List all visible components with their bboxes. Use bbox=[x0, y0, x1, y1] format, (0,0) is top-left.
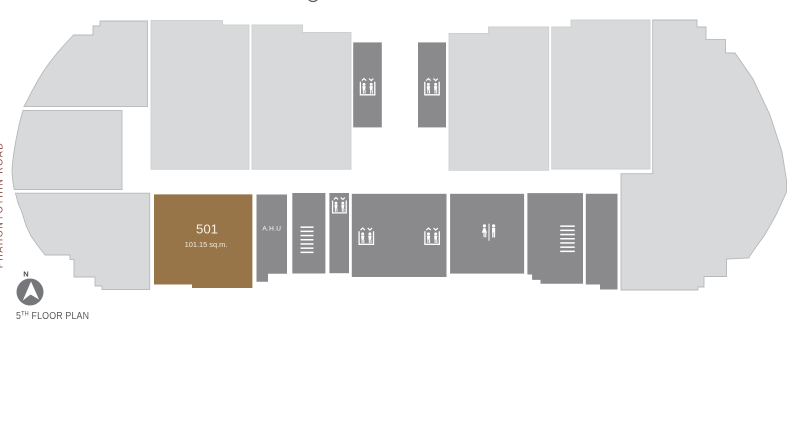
svg-text:A.H.U: A.H.U bbox=[262, 226, 281, 233]
svg-text:501: 501 bbox=[196, 222, 218, 237]
svg-text:5TH FLOOR PLAN: 5TH FLOOR PLAN bbox=[16, 310, 89, 322]
svg-text:N: N bbox=[23, 270, 28, 279]
svg-text:101.15 sq.m.: 101.15 sq.m. bbox=[185, 240, 228, 249]
svg-text:PHAHONYOTHIN ROAD: PHAHONYOTHIN ROAD bbox=[0, 142, 5, 269]
